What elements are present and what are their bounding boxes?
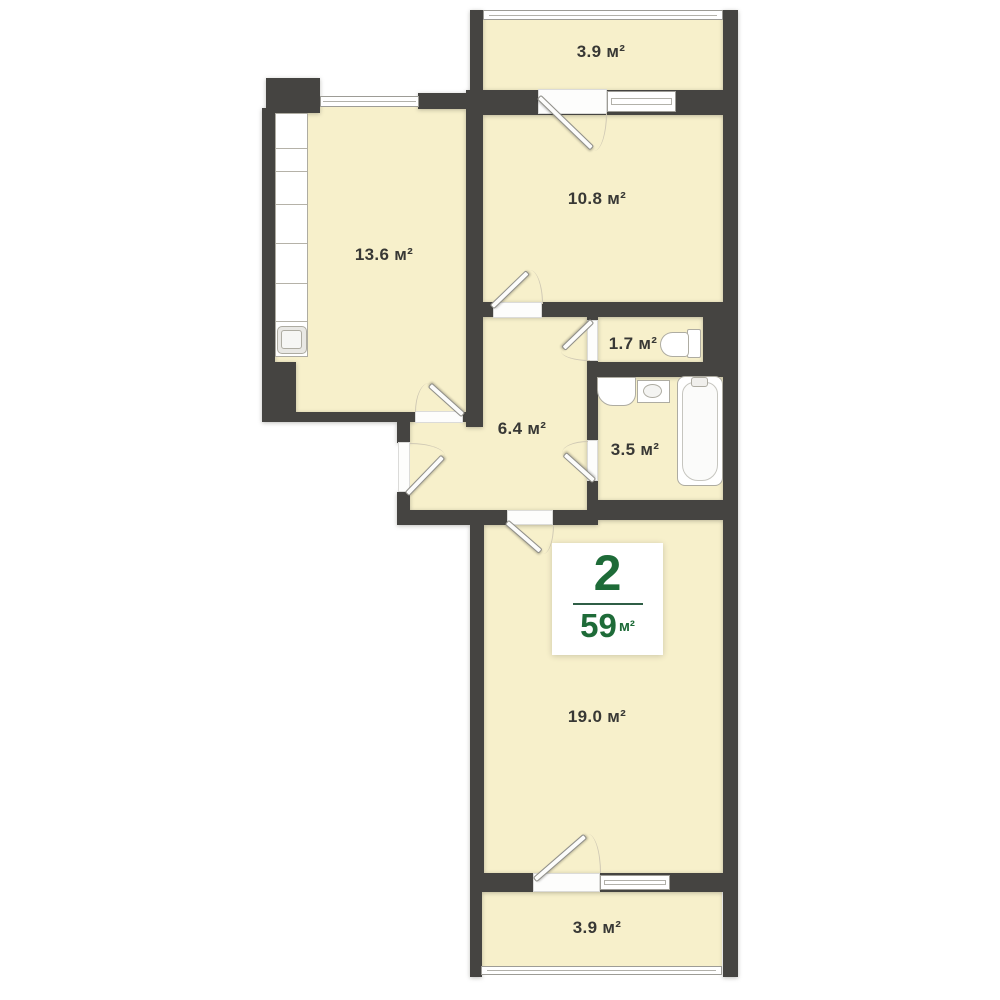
bathtub-inner	[682, 382, 718, 481]
wall	[470, 10, 483, 93]
bathroom-sink-basin	[643, 384, 662, 398]
wall	[587, 362, 723, 377]
badge-total-area-value: 59	[580, 607, 617, 644]
washing-machine-icon	[597, 377, 636, 406]
apartment-badge: 2 59м²	[552, 543, 663, 655]
wall	[463, 412, 483, 422]
door-opening	[507, 510, 553, 525]
room-area-label-balcony-bottom: 3.9 м²	[573, 918, 621, 938]
wall	[470, 510, 484, 892]
toilet-bowl-icon	[660, 332, 689, 357]
room-area-label-living-room: 19.0 м²	[568, 707, 626, 727]
wall	[397, 510, 598, 525]
badge-area-unit: м²	[619, 618, 635, 635]
wall	[723, 10, 738, 977]
wall	[418, 93, 466, 109]
window	[481, 966, 722, 975]
kitchen-sink-basin	[281, 330, 302, 349]
kitchen-cabinets	[275, 113, 308, 357]
window	[600, 875, 670, 890]
room-area-label-bathroom: 3.5 м²	[611, 440, 659, 460]
room-area-label-balcony-top: 3.9 м²	[577, 42, 625, 62]
room-area-label-hallway: 6.4 м²	[498, 419, 546, 439]
door-opening	[493, 302, 542, 318]
wall	[397, 420, 410, 443]
wall	[466, 90, 483, 427]
toilet-tank	[687, 329, 701, 358]
wall	[470, 892, 482, 977]
wall	[703, 313, 723, 362]
badge-total-area: 59м²	[552, 609, 663, 644]
door-opening	[398, 442, 410, 492]
window	[607, 91, 676, 112]
wall	[587, 500, 723, 520]
window	[483, 10, 723, 20]
floor-plan: 3.9 м² 10.8 м² 13.6 м² 1.7 м² 6.4 м² 3.5…	[0, 0, 1000, 1000]
room-area-label-wc: 1.7 м²	[609, 334, 657, 354]
room-area-label-bedroom: 10.8 м²	[568, 189, 626, 209]
badge-rooms-count: 2	[552, 546, 663, 600]
wall	[266, 412, 415, 422]
window	[320, 96, 419, 107]
room-area-label-kitchen: 13.6 м²	[355, 245, 413, 265]
badge-divider	[573, 603, 643, 605]
bathtub-faucet-icon	[691, 377, 708, 387]
